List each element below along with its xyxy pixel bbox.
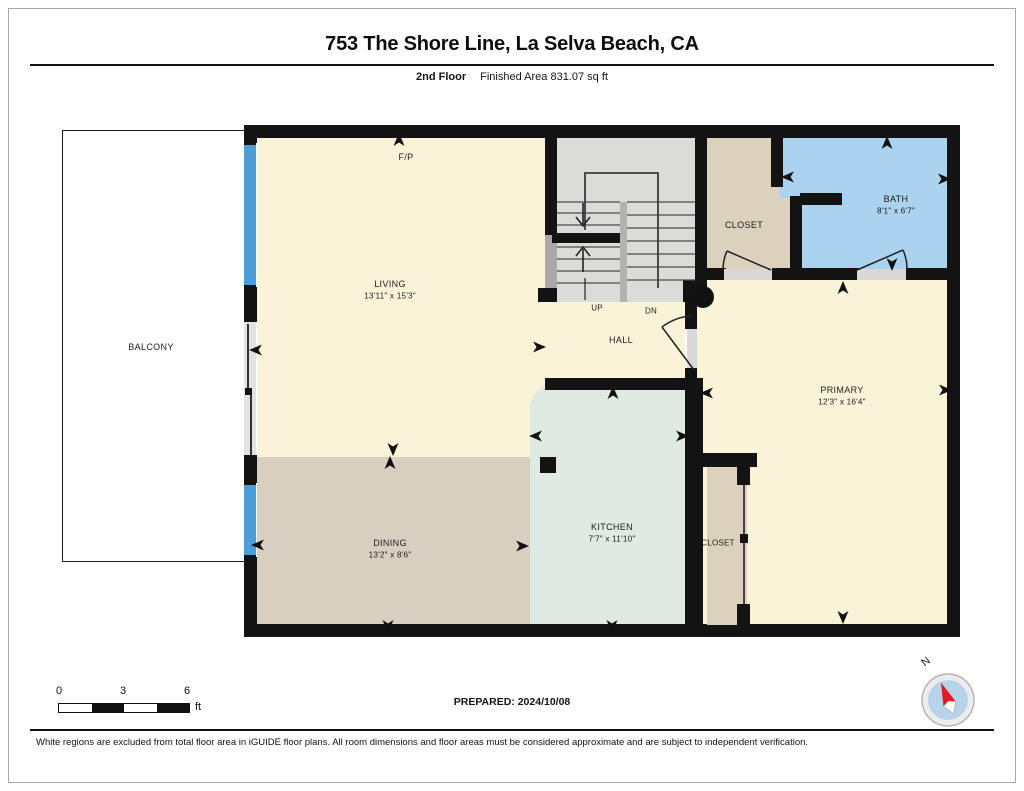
label-dining: DINING <box>373 538 407 548</box>
label-kitchen: KITCHEN <box>591 522 633 532</box>
compass-icon <box>916 668 980 732</box>
stair-up-arrow <box>576 247 590 300</box>
door-swing-closet-top <box>723 251 771 270</box>
floorplan-page: 753 The Shore Line, La Selva Beach, CA 2… <box>0 0 1024 791</box>
label-hall: HALL <box>609 335 633 345</box>
stair-down-arrow <box>576 203 590 226</box>
dims-kitchen: 7'7" x 11'10" <box>589 535 636 544</box>
plan-overlay <box>0 0 1024 791</box>
dims-living: 13'11" x 15'3" <box>364 292 416 301</box>
footer-divider <box>30 729 994 731</box>
label-closet-primary: CLOSET <box>701 539 734 548</box>
prepared-date: PREPARED: 2024/10/08 <box>0 696 1024 708</box>
label-closet-top: CLOSET <box>725 220 763 230</box>
label-fireplace: F/P <box>398 152 413 162</box>
label-balcony: BALCONY <box>128 342 173 352</box>
label-stairs-up: UP <box>591 304 603 313</box>
floor-plan: BALCONY F/P LIVING 13'11" x 15'3" UP DN … <box>0 0 1024 791</box>
disclaimer-text: White regions are excluded from total fl… <box>36 737 808 748</box>
label-primary: PRIMARY <box>820 385 863 395</box>
dims-bath: 8'1" x 6'7" <box>877 207 915 216</box>
door-swing-bath <box>857 250 907 270</box>
label-living: LIVING <box>374 279 406 289</box>
label-stairs-down: DN <box>645 307 657 316</box>
door-pivot-dot <box>692 286 714 308</box>
camera-arrows <box>249 133 952 633</box>
dims-dining: 13'2" x 8'6" <box>369 551 412 560</box>
door-swing-primary <box>662 316 694 370</box>
dims-primary: 12'3" x 16'4" <box>818 398 866 407</box>
stair-steps <box>557 202 695 283</box>
label-bath: BATH <box>884 194 909 204</box>
